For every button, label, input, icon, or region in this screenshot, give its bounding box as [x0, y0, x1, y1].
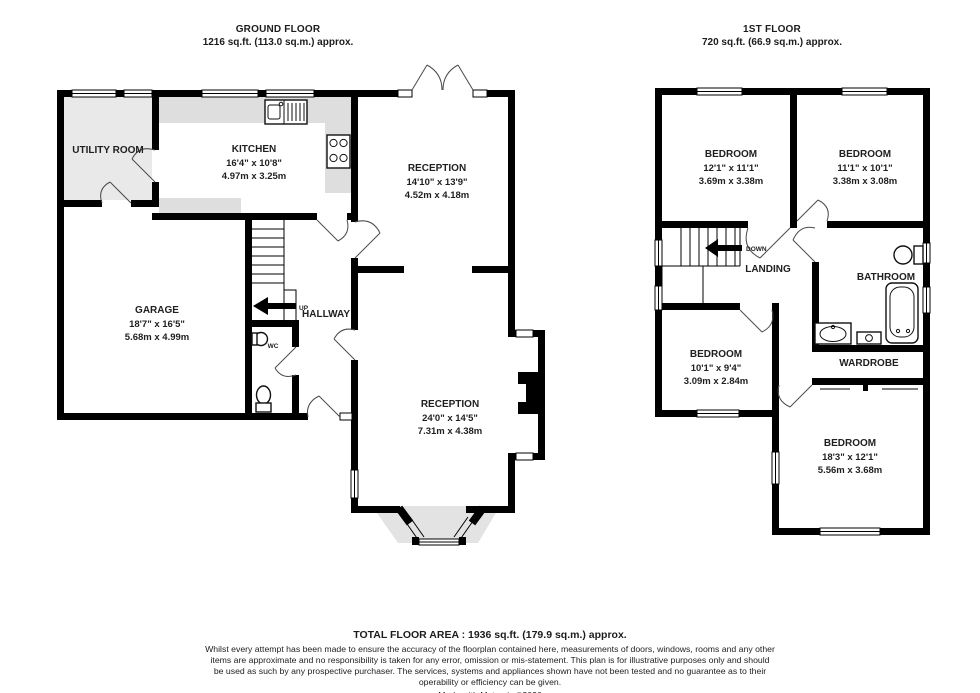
bedroom3-dim-metric: 3.09m x 2.84m: [684, 376, 748, 387]
kitchen-dim-metric: 4.97m x 3.25m: [222, 171, 286, 182]
bedroom1-label: BEDROOM: [705, 149, 757, 160]
total-floor-area: TOTAL FLOOR AREA : 1936 sq.ft. (179.9 sq…: [0, 629, 980, 641]
wardrobe-label: WARDROBE: [839, 358, 899, 369]
down-label: DOWN: [746, 246, 767, 253]
bedroom1-dim-metric: 3.69m x 3.38m: [699, 176, 763, 187]
garage-dim-metric: 5.68m x 4.99m: [125, 332, 189, 343]
floorplan-canvas: UTILITY ROOM KITCHEN 16'4" x 10'8" 4.97m…: [0, 0, 980, 693]
bedroom2-dim-imperial: 11'1" x 10'1": [837, 163, 892, 174]
up-arrow-icon: [253, 297, 296, 315]
metropix-credit: Made with Metropix ©2026: [0, 690, 980, 693]
reception-front-dim-metric: 4.52m x 4.18m: [405, 190, 469, 201]
garage-dim-imperial: 18'7" x 16'5": [129, 319, 185, 330]
stove-icon: [327, 135, 350, 168]
ground-floor-plan: UTILITY ROOM KITCHEN 16'4" x 10'8" 4.97m…: [57, 65, 545, 545]
utility-room-label: UTILITY ROOM: [72, 145, 143, 156]
bathroom-label: BATHROOM: [857, 272, 915, 283]
bedroom2-label: BEDROOM: [839, 149, 891, 160]
reception-rear-label: RECEPTION: [421, 399, 479, 410]
bedroom4-dim-imperial: 18'3" x 12'1": [822, 452, 878, 463]
bathroom-sink-icon: [815, 323, 851, 344]
first-floor-plan: BEDROOM 12'1" x 11'1" 3.69m x 3.38m BEDR…: [655, 88, 930, 535]
bedroom4-dim-metric: 5.56m x 3.68m: [818, 465, 882, 476]
garage-label: GARAGE: [135, 305, 179, 316]
reception-front-dim-imperial: 14'10" x 13'9": [406, 177, 467, 188]
footer: TOTAL FLOOR AREA : 1936 sq.ft. (179.9 sq…: [0, 629, 980, 693]
hallway-label: HALLWAY: [302, 309, 350, 320]
bedroom4-label: BEDROOM: [824, 438, 876, 449]
bathtub-icon: [886, 283, 918, 343]
kitchen-dim-imperial: 16'4" x 10'8": [226, 158, 282, 169]
wc-toilet-icon: [256, 386, 271, 412]
down-arrow-icon: [705, 239, 742, 257]
wc-label: WC: [268, 343, 279, 350]
kitchen-label: KITCHEN: [232, 144, 276, 155]
bedroom3-dim-imperial: 10'1" x 9'4": [691, 363, 742, 374]
disclaimer-text: Whilst every attempt has been made to en…: [205, 644, 775, 689]
staircase-down: [662, 228, 740, 306]
bathroom-toilet-icon: [894, 246, 923, 264]
reception-front-label: RECEPTION: [408, 163, 466, 174]
floorplan-page: GROUND FLOOR 1216 sq.ft. (113.0 sq.m.) a…: [0, 0, 980, 693]
up-label: UP: [299, 305, 309, 312]
kitchen-sink-icon: [265, 100, 307, 124]
reception-rear-dim-metric: 7.31m x 4.38m: [418, 426, 482, 437]
landing-label: LANDING: [745, 264, 791, 275]
reception-rear-dim-imperial: 24'0" x 14'5": [422, 413, 478, 424]
bedroom1-dim-imperial: 12'1" x 11'1": [703, 163, 758, 174]
bathroom-unit-icon: [857, 332, 881, 344]
wc-sink-icon: [252, 333, 268, 346]
bedroom2-dim-metric: 3.38m x 3.08m: [833, 176, 897, 187]
bedroom3-label: BEDROOM: [690, 349, 742, 360]
